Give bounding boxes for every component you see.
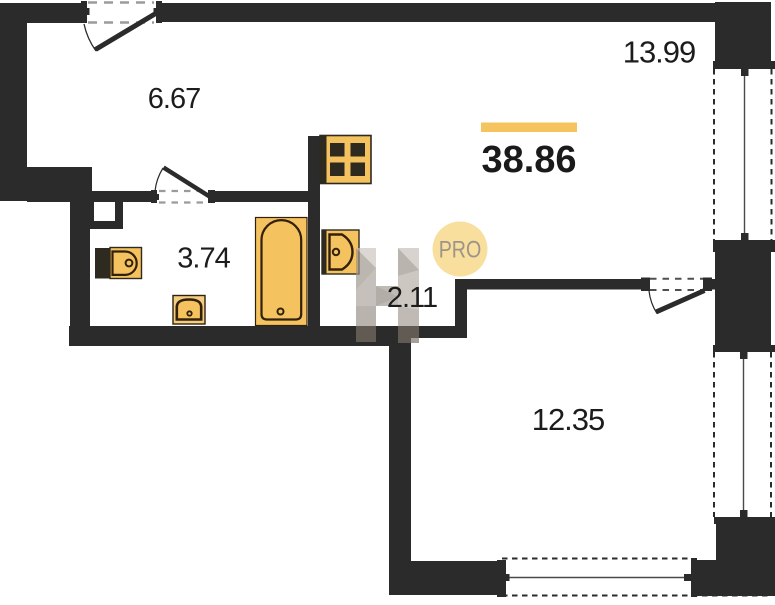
svg-text:38.86: 38.86 — [481, 139, 576, 181]
svg-text:6.67: 6.67 — [148, 83, 200, 115]
svg-text:PRO: PRO — [439, 236, 482, 263]
svg-text:13.99: 13.99 — [623, 35, 696, 70]
svg-text:2.11: 2.11 — [387, 282, 437, 314]
svg-text:12.35: 12.35 — [532, 402, 605, 437]
svg-text:3.74: 3.74 — [177, 243, 230, 275]
